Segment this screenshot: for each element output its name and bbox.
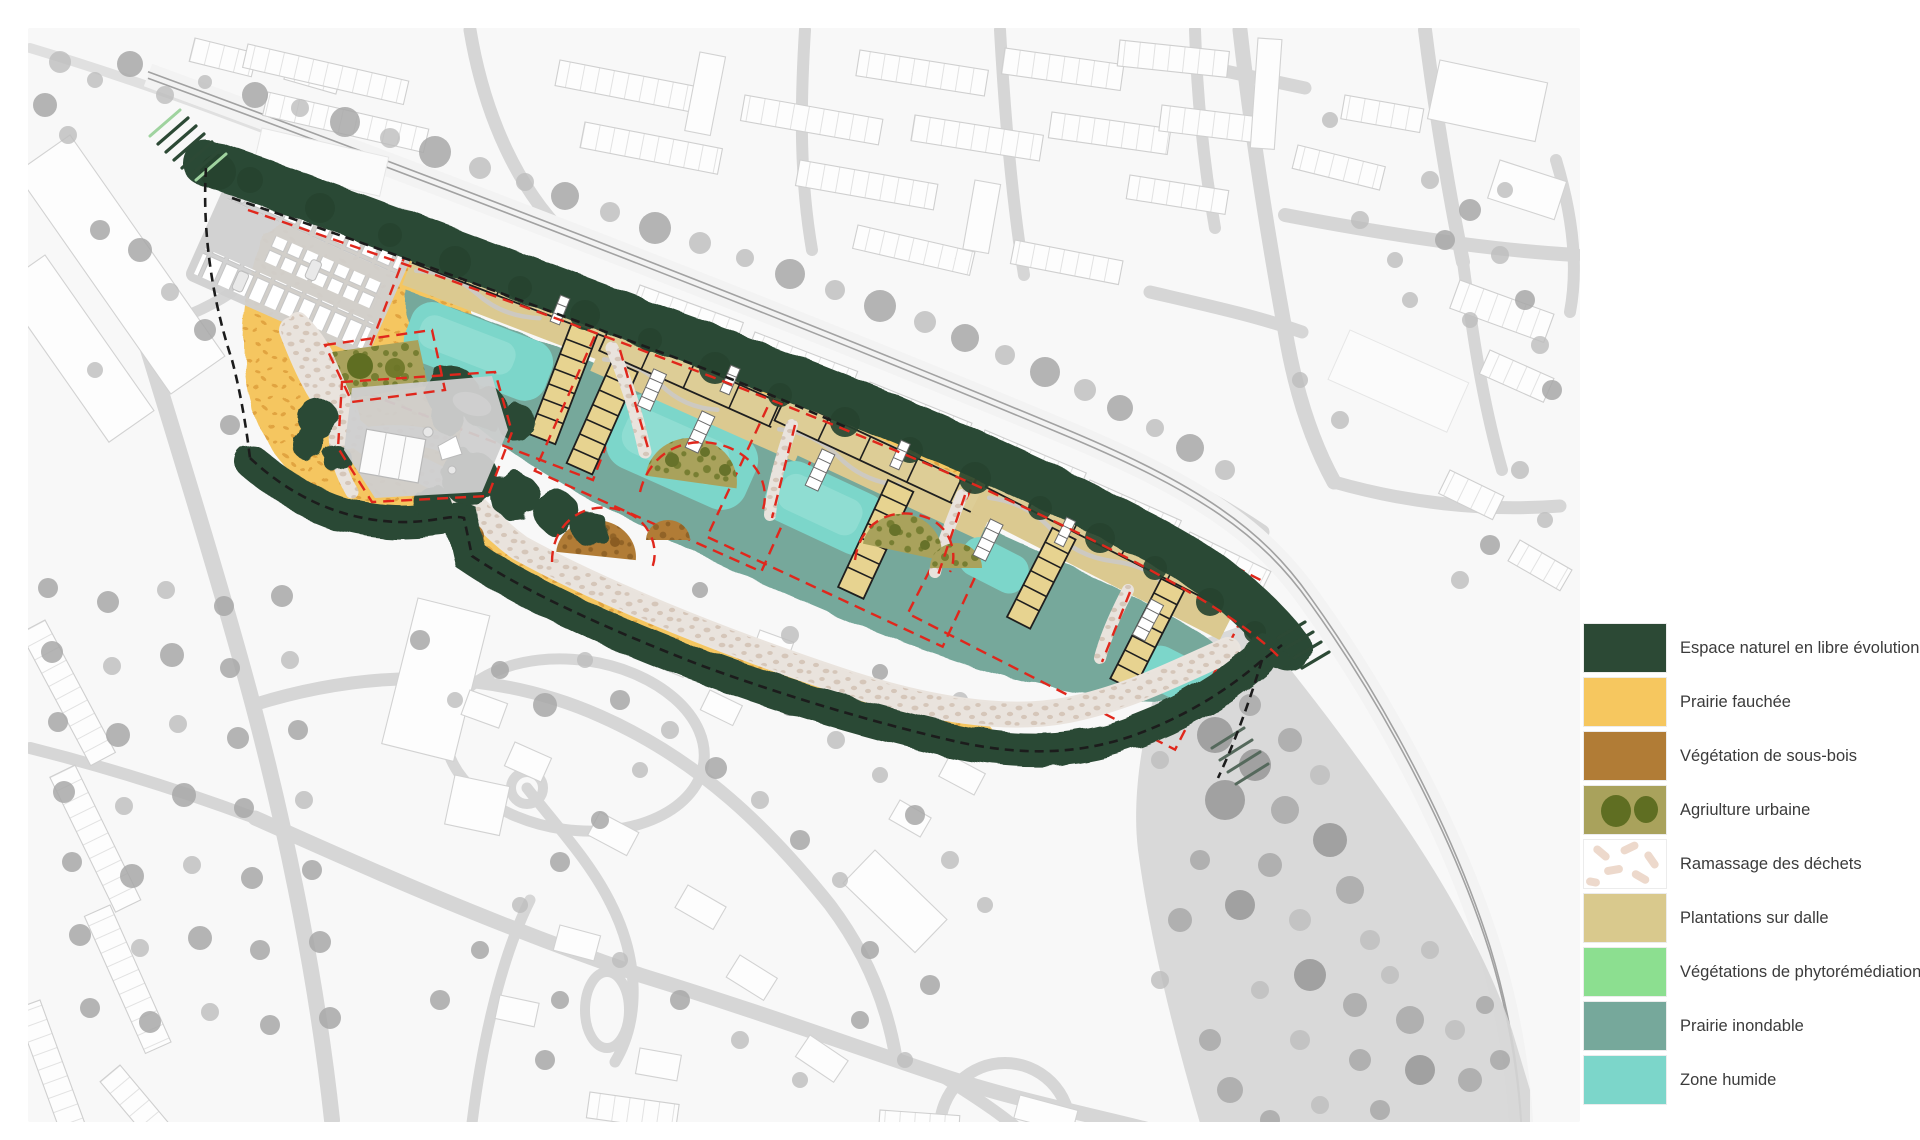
legend-label: Espace naturel en libre évolution xyxy=(1667,639,1919,658)
legend-swatch-espace-naturel xyxy=(1583,623,1667,673)
legend-label: Ramassage des déchets xyxy=(1667,855,1862,874)
legend-swatch-prairie-inondable xyxy=(1583,1001,1667,1051)
agriculture-dot-icon xyxy=(1601,795,1631,827)
legend-swatch-ramassage-dechets xyxy=(1583,839,1667,889)
legend-label: Plantations sur dalle xyxy=(1667,909,1829,928)
capsule-icon xyxy=(1619,840,1640,855)
legend-item-agriculture-urbaine: Agriulture urbaine xyxy=(1583,785,1920,835)
playground-area xyxy=(344,376,508,498)
capsule-icon xyxy=(1643,850,1660,870)
legend-item-phytoremediation: Végétations de phytorémédiation xyxy=(1583,947,1920,997)
legend-label: Végétation de sous-bois xyxy=(1667,747,1857,766)
legend-label: Prairie fauchée xyxy=(1667,693,1791,712)
legend-label: Agriulture urbaine xyxy=(1667,801,1810,820)
legend-item-sous-bois: Végétation de sous-bois xyxy=(1583,731,1920,781)
legend-label: Végétations de phytorémédiation xyxy=(1667,963,1920,982)
legend-swatch-plantations-dalle xyxy=(1583,893,1667,943)
legend-swatch-prairie-fauchee xyxy=(1583,677,1667,727)
legend-item-plantations-dalle: Plantations sur dalle xyxy=(1583,893,1920,943)
legend-swatch-sous-bois xyxy=(1583,731,1667,781)
capsule-icon xyxy=(1585,877,1600,887)
agriculture-dot-icon xyxy=(1634,796,1658,823)
legend-item-espace-naturel: Espace naturel en libre évolution xyxy=(1583,623,1920,673)
legend-swatch-agriculture-urbaine xyxy=(1583,785,1667,835)
capsule-icon xyxy=(1592,844,1612,862)
legend-item-zone-humide: Zone humide xyxy=(1583,1055,1920,1105)
capsule-icon xyxy=(1603,864,1623,875)
legend-item-prairie-fauchee: Prairie fauchée xyxy=(1583,677,1920,727)
capsule-icon xyxy=(1630,869,1650,885)
legend-swatch-zone-humide xyxy=(1583,1055,1667,1105)
legend-label: Prairie inondable xyxy=(1667,1017,1804,1036)
legend-label: Zone humide xyxy=(1667,1071,1776,1090)
legend-item-ramassage-dechets: Ramassage des déchets xyxy=(1583,839,1920,889)
map-legend: Espace naturel en libre évolution Prairi… xyxy=(1583,623,1920,1105)
legend-item-prairie-inondable: Prairie inondable xyxy=(1583,1001,1920,1051)
legend-swatch-phytoremediation xyxy=(1583,947,1667,997)
